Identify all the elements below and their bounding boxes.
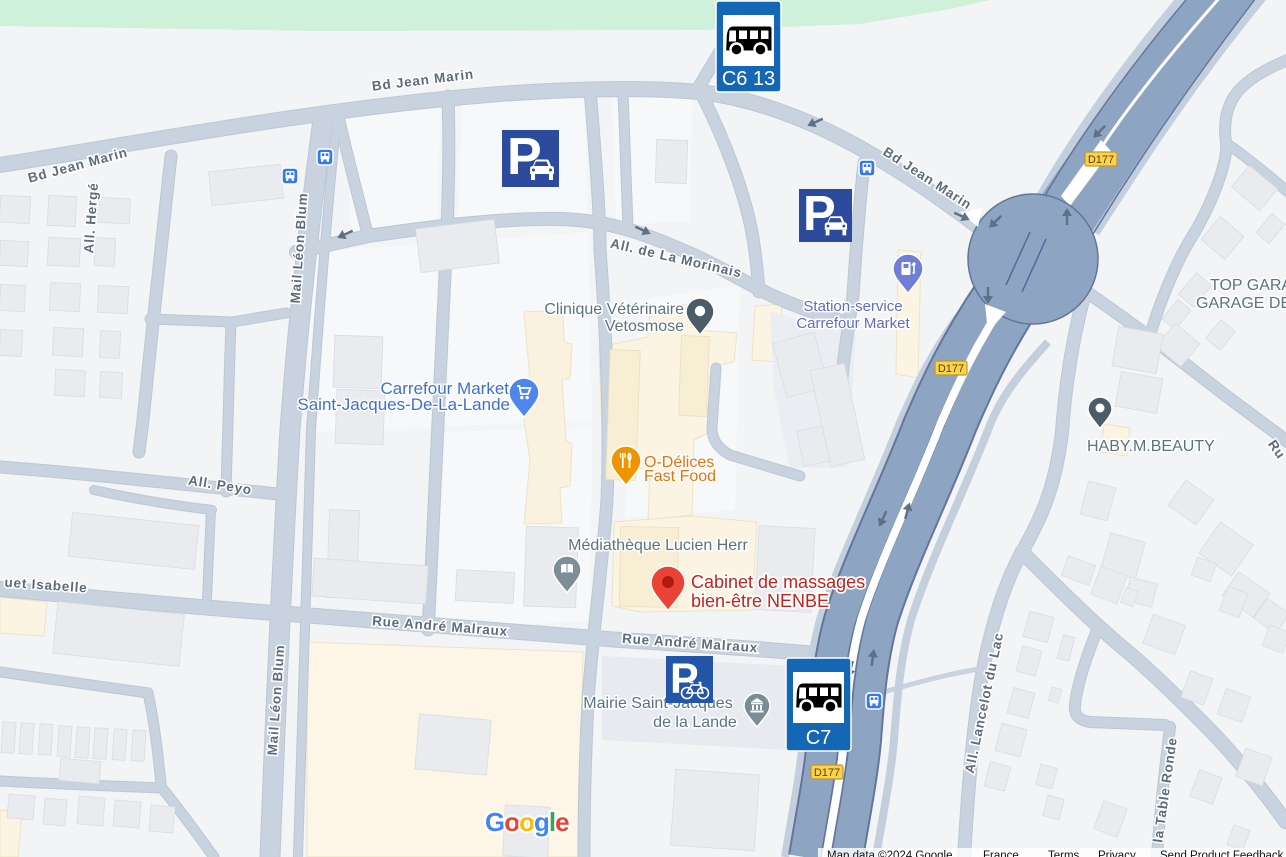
svg-text:HABY.M.BEAUTY: HABY.M.BEAUTY [1087, 438, 1215, 455]
svg-text:Station-service: Station-service [803, 298, 902, 315]
svg-text:D177: D177 [814, 767, 840, 779]
svg-text:P: P [803, 187, 836, 241]
svg-text:Terms: Terms [1048, 850, 1080, 857]
svg-text:GARAGE DE: GARAGE DE [1196, 295, 1286, 312]
svg-text:Cabinet de massages: Cabinet de massages [691, 572, 865, 592]
svg-text:Google: Google [485, 807, 569, 837]
svg-text:bien-être NENBE: bien-être NENBE [691, 591, 829, 611]
svg-text:D177: D177 [938, 363, 964, 375]
svg-text:Send Product Feedback: Send Product Feedback [1160, 850, 1284, 857]
svg-text:Fast Food: Fast Food [644, 468, 716, 485]
svg-text:Vetosmose: Vetosmose [605, 318, 684, 335]
svg-text:Saint-Jacques-De-La-Lande: Saint-Jacques-De-La-Lande [297, 395, 510, 414]
svg-text:C7: C7 [806, 727, 832, 749]
svg-text:Médiathèque Lucien Herr: Médiathèque Lucien Herr [568, 537, 748, 554]
svg-text:P: P [670, 655, 699, 703]
svg-text:Privacy: Privacy [1098, 850, 1136, 857]
svg-text:D177: D177 [1088, 154, 1114, 166]
svg-text:Carrefour Market: Carrefour Market [796, 315, 910, 332]
svg-text:C6 13: C6 13 [722, 68, 775, 90]
svg-text:Map data ©2024 Google: Map data ©2024 Google [827, 850, 952, 857]
svg-text:de la Lande: de la Lande [653, 714, 737, 731]
svg-text:TOP GARA: TOP GARA [1210, 277, 1286, 294]
svg-text:France: France [983, 850, 1019, 857]
svg-text:Clinique Vétérinaire: Clinique Vétérinaire [544, 301, 684, 318]
svg-text:P: P [507, 128, 542, 186]
